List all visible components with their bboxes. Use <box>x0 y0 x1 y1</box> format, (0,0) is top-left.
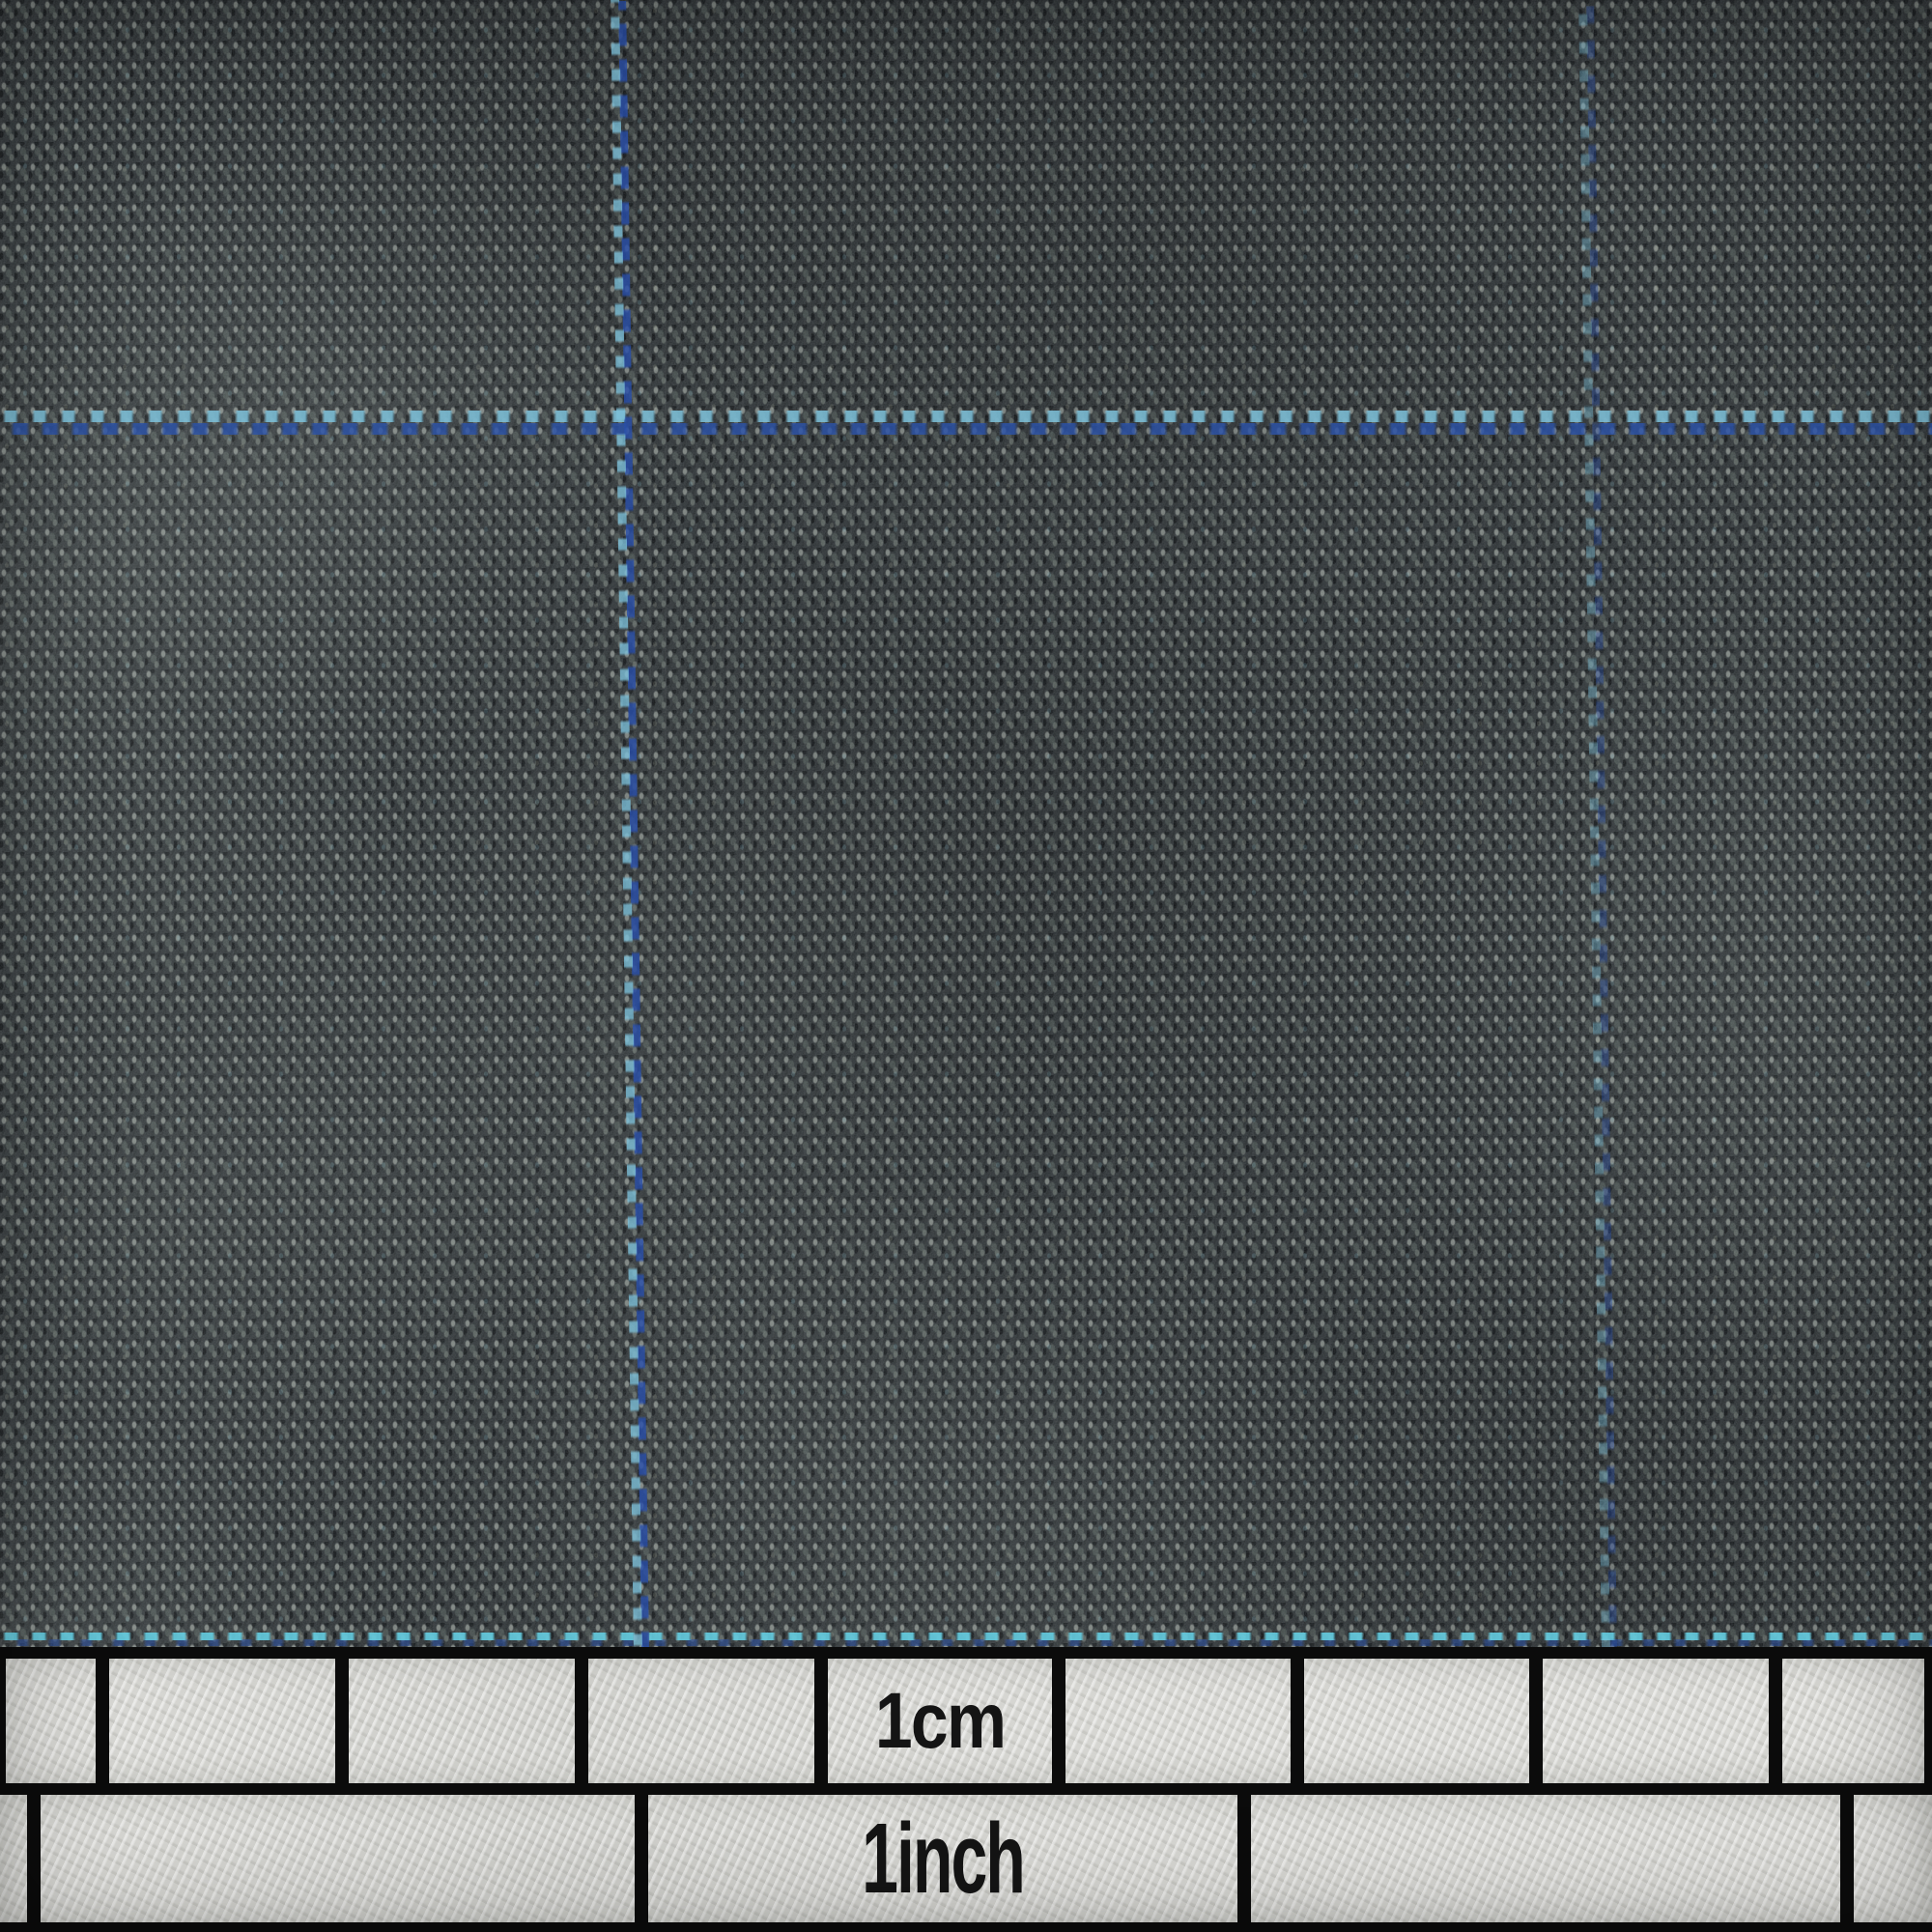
inch-scale-divider <box>27 1795 41 1922</box>
cm-scale-divider <box>1052 1659 1065 1783</box>
cm-scale-divider <box>1529 1659 1543 1783</box>
inch-scale-row: 1inch <box>0 1795 1932 1922</box>
cm-scale-row: 1cm <box>0 1659 1932 1783</box>
cm-scale-divider <box>335 1659 349 1783</box>
cm-scale-left-edge <box>0 1659 6 1783</box>
scale-middle-border <box>0 1783 1932 1795</box>
cm-scale-divider <box>96 1659 109 1783</box>
cm-scale-divider <box>1291 1659 1304 1783</box>
cm-scale-divider <box>575 1659 588 1783</box>
inch-scale-divider <box>1237 1795 1251 1922</box>
cm-scale-divider <box>1769 1659 1782 1783</box>
cm-scale-label: 1cm <box>875 1676 1005 1767</box>
scale-top-border <box>0 1647 1932 1659</box>
inch-scale-label: 1inch <box>862 1802 1024 1916</box>
scale-bottom-border <box>0 1922 1932 1932</box>
overcheck-horizontal-line-lower <box>0 1633 1932 1646</box>
inch-scale-divider <box>635 1795 648 1922</box>
overcheck-horizontal-line-upper <box>0 410 1932 437</box>
cm-scale-right-edge <box>1924 1659 1932 1783</box>
inch-scale-label-cell: 1inch <box>648 1795 1237 1922</box>
cm-scale-label-cell: 1cm <box>828 1659 1052 1783</box>
inch-scale-divider <box>1840 1795 1854 1922</box>
fabric-macro-photo: 1cm 1inch <box>0 0 1932 1932</box>
cm-scale-divider <box>814 1659 828 1783</box>
measurement-scale-bar: 1cm 1inch <box>0 1647 1932 1932</box>
